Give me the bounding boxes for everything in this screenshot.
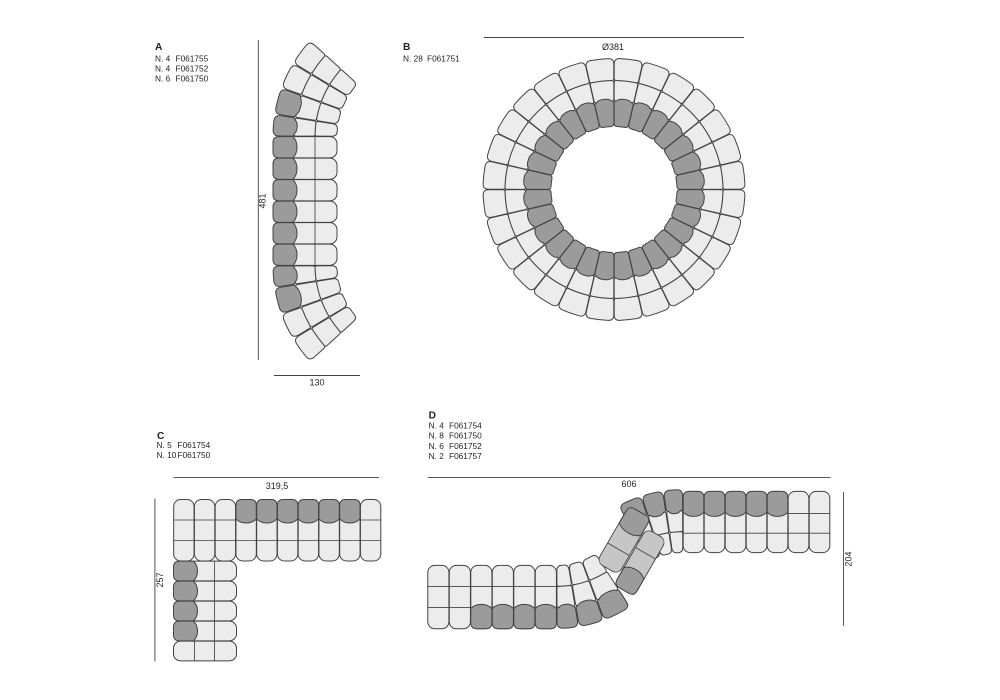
svg-text:N. 8: N. 8 xyxy=(429,431,445,441)
svg-text:F061750: F061750 xyxy=(449,431,482,441)
svg-text:N. 5: N. 5 xyxy=(157,440,173,450)
svg-text:F061750: F061750 xyxy=(178,450,211,460)
svg-text:N. 2: N. 2 xyxy=(429,451,445,461)
svg-text:F061757: F061757 xyxy=(449,451,482,461)
svg-text:204: 204 xyxy=(844,551,854,566)
svg-text:F061751: F061751 xyxy=(427,53,460,63)
svg-text:N. 4: N. 4 xyxy=(155,63,171,73)
svg-text:F061752: F061752 xyxy=(449,441,482,451)
svg-text:N. 4: N. 4 xyxy=(155,53,171,63)
svg-text:B: B xyxy=(403,42,410,53)
svg-text:N. 4: N. 4 xyxy=(429,421,445,431)
svg-text:130: 130 xyxy=(309,378,324,388)
svg-text:N. 6: N. 6 xyxy=(155,74,171,84)
svg-text:F061755: F061755 xyxy=(176,53,209,63)
svg-text:N. 6: N. 6 xyxy=(429,441,445,451)
svg-text:F061754: F061754 xyxy=(449,421,482,431)
svg-text:N. 28: N. 28 xyxy=(403,53,423,63)
svg-text:Ø381: Ø381 xyxy=(602,42,624,52)
svg-text:319,5: 319,5 xyxy=(266,481,289,491)
svg-text:N. 10: N. 10 xyxy=(157,450,177,460)
svg-text:F061752: F061752 xyxy=(176,63,209,73)
svg-text:257: 257 xyxy=(155,572,165,587)
svg-text:481: 481 xyxy=(258,193,268,208)
svg-text:F061754: F061754 xyxy=(178,440,211,450)
svg-text:606: 606 xyxy=(621,479,636,489)
svg-text:F061750: F061750 xyxy=(176,74,209,84)
svg-text:A: A xyxy=(155,42,163,53)
